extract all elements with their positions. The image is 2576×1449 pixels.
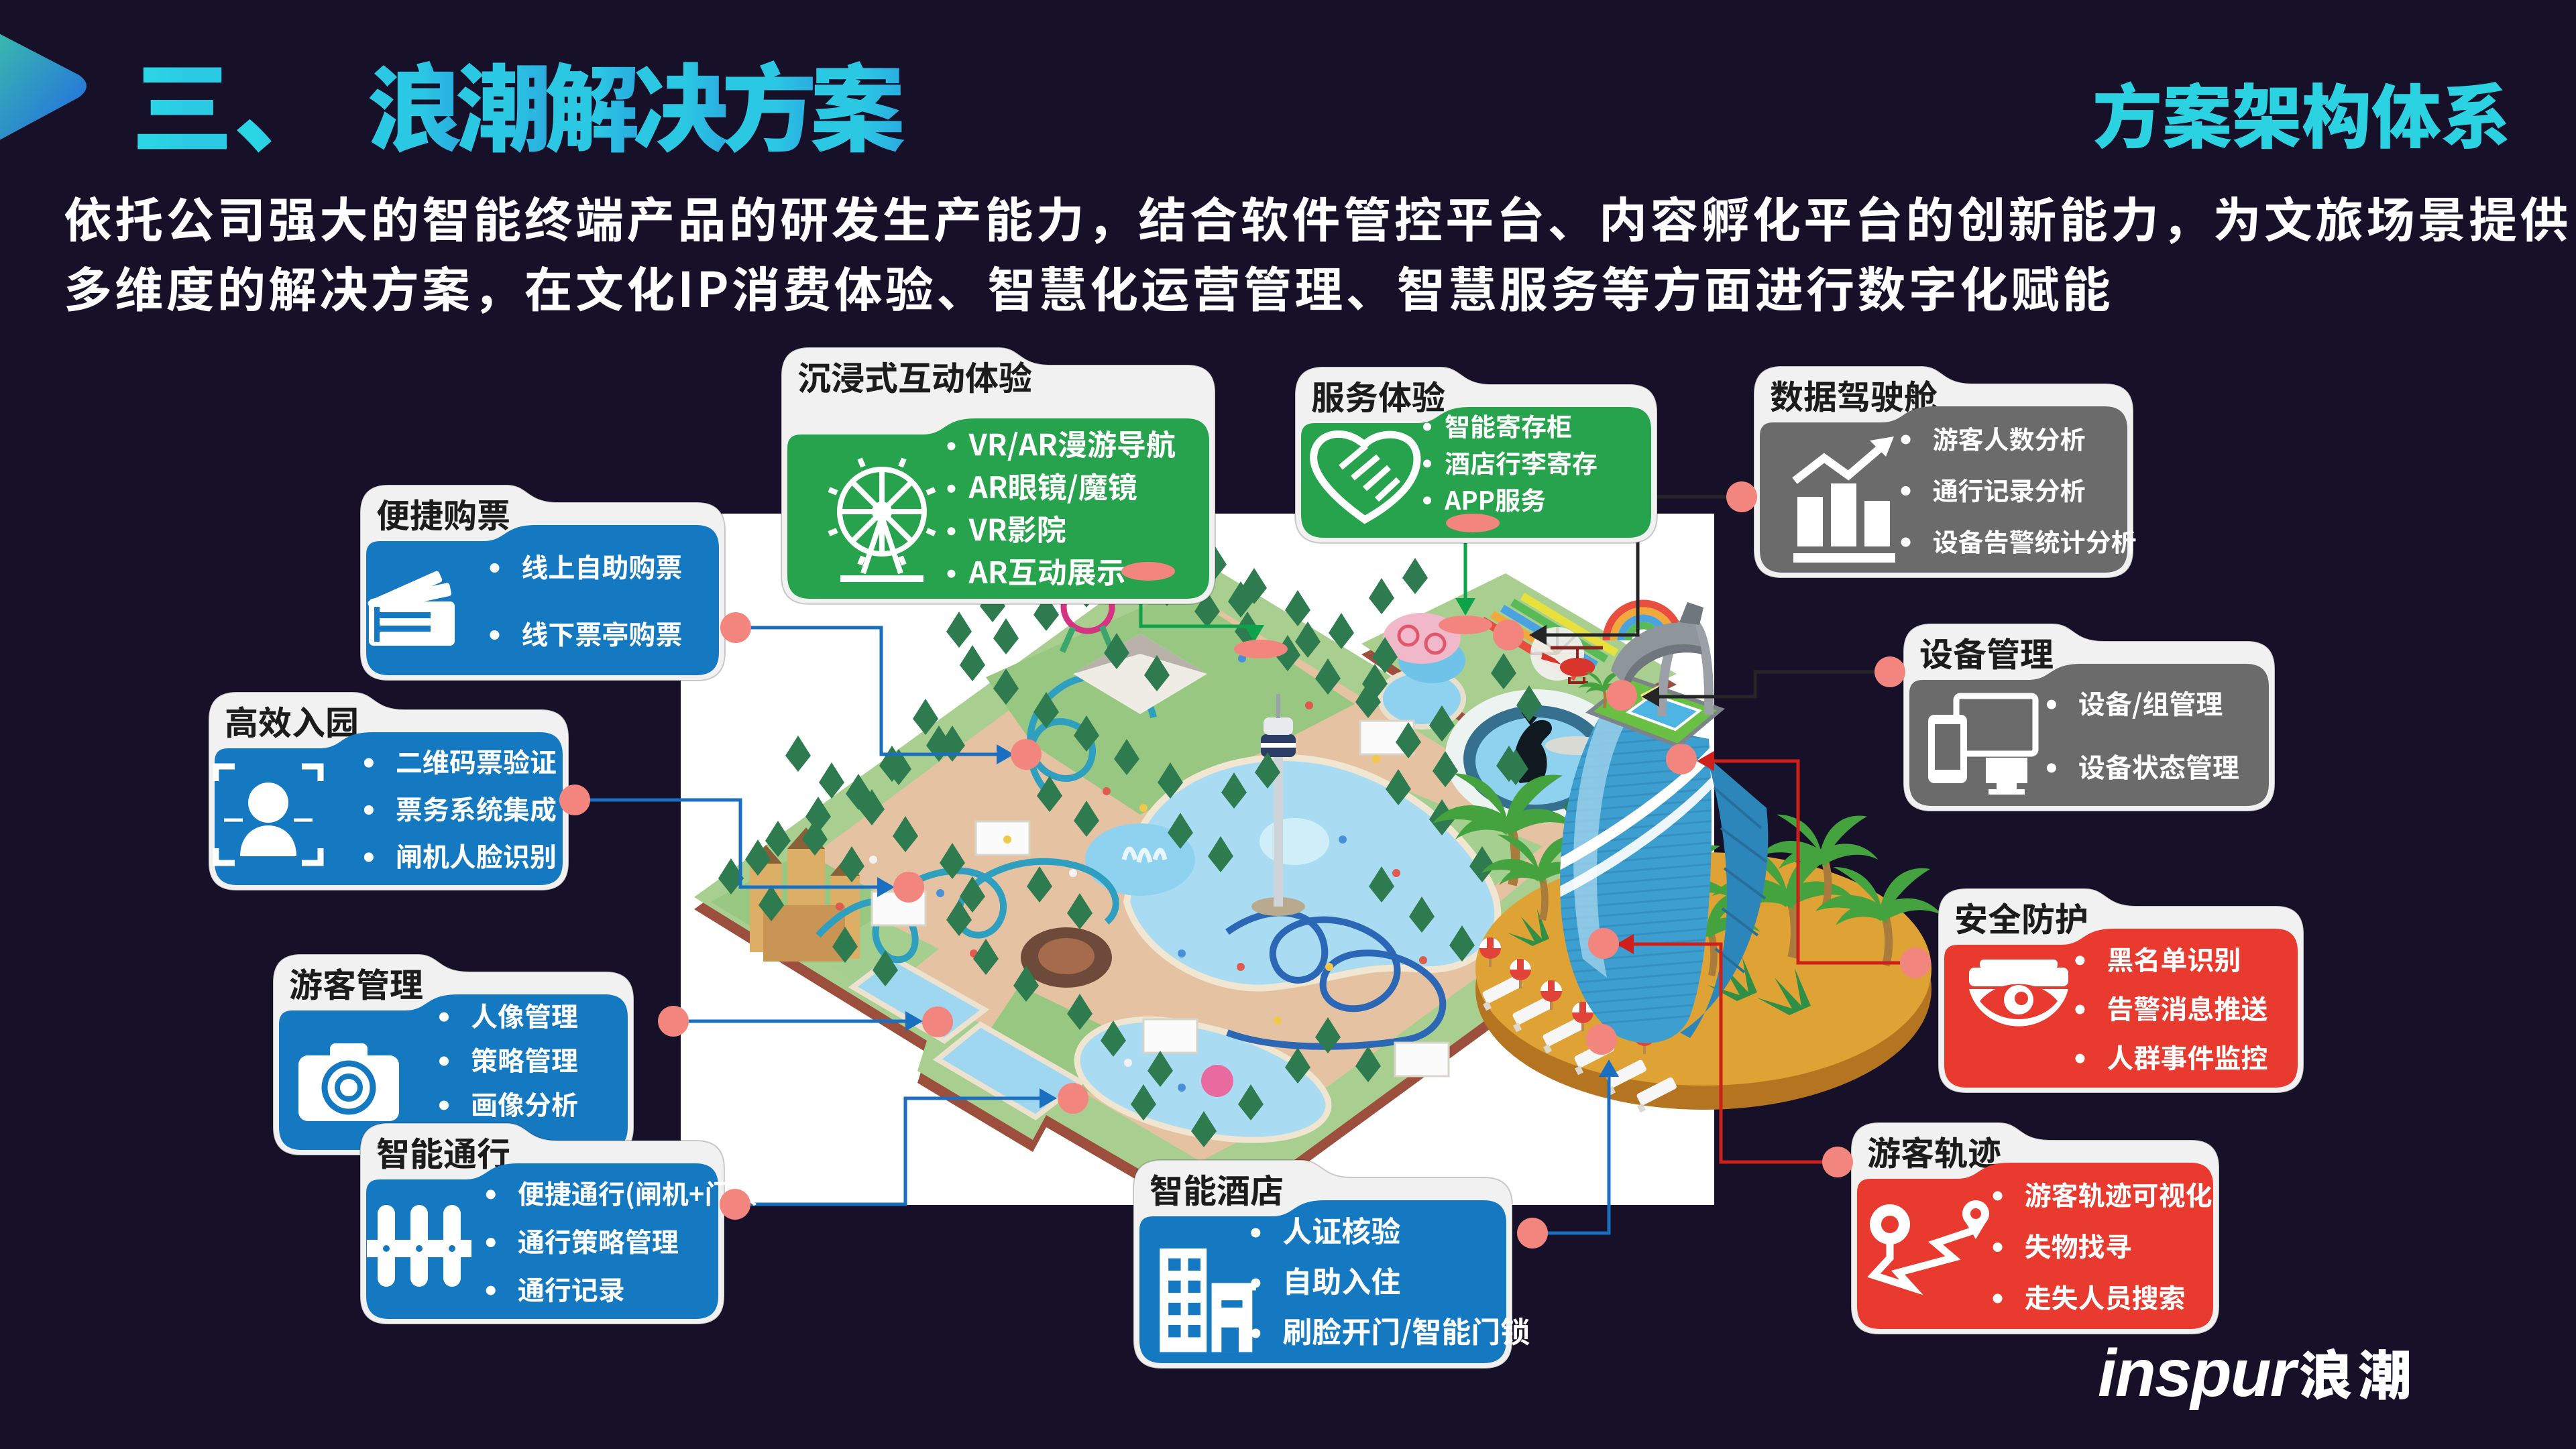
- svg-text:inspur: inspur: [2098, 1336, 2300, 1411]
